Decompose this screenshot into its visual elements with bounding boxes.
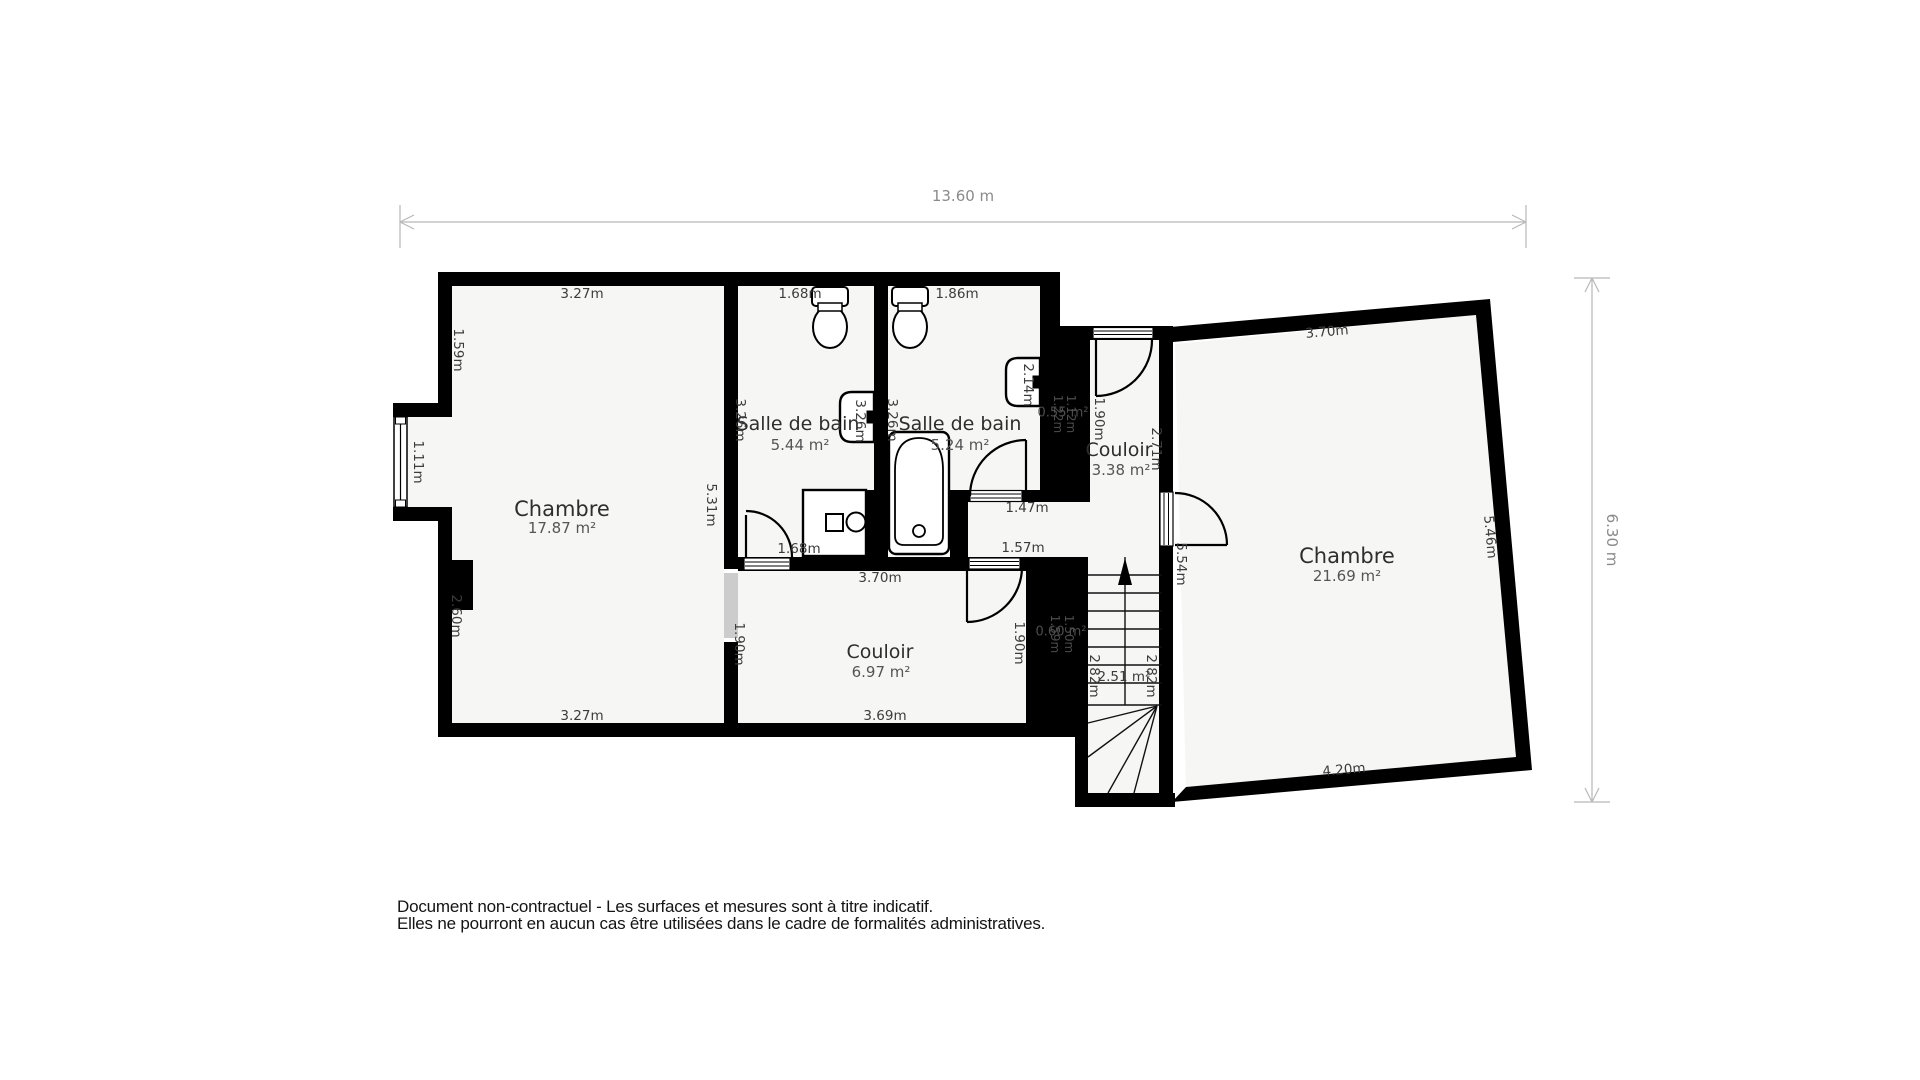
room-name-chambre-right: Chambre — [1299, 544, 1395, 568]
overall-width-dimension: 13.60 m — [932, 187, 994, 205]
dim-label: 3.26m — [884, 398, 900, 441]
window-icon — [394, 417, 407, 507]
room-name-bath1: Salle de bain — [737, 413, 860, 435]
door-opening — [969, 558, 1020, 569]
dim-label: 1.12m — [1064, 395, 1078, 433]
dim-label: 3.27m — [560, 708, 603, 724]
room-name-bath2: Salle de bain — [899, 413, 1022, 435]
dim-label: 3.27m — [560, 286, 603, 302]
room-name-chambre-left: Chambre — [514, 497, 610, 521]
dim-label: 1.11m — [410, 440, 426, 483]
dim-label: 2.60m — [448, 594, 464, 637]
room-area-chambre-left: 17.87 m² — [528, 519, 596, 537]
door-opening — [1160, 492, 1173, 546]
dim-label: 5.31m — [703, 483, 719, 526]
dim-label: 1.90m — [1091, 397, 1107, 440]
dim-label: 1.90m — [1011, 621, 1027, 664]
room-name-couloir-main: Couloir — [847, 641, 914, 663]
dim-label: 1.57m — [1001, 540, 1044, 556]
room-area-couloir-small: 3.38 m² — [1092, 461, 1151, 479]
dim-label: 1.59m — [450, 328, 466, 371]
dim-label: 1.50m — [1062, 615, 1076, 653]
dim-label: 2.71m — [1148, 427, 1164, 470]
dim-label: 3.26m — [852, 399, 868, 442]
floor-plan-page: 13.60 m 6.30 m Chambre 17.87 m² 3.27m 3.… — [0, 0, 1920, 1080]
dim-label: 3.69m — [863, 708, 906, 724]
room-area-couloir-main: 6.97 m² — [852, 663, 911, 681]
dim-label: 1.68m — [778, 286, 821, 302]
dim-label: 1.86m — [935, 286, 978, 302]
dim-label: 5.54m — [1173, 542, 1189, 585]
dim-label: 3.70m — [858, 570, 901, 586]
room-area-bath1: 5.44 m² — [771, 436, 830, 454]
window-icon — [1093, 328, 1153, 339]
room-name-couloir-small: Couloir — [1086, 439, 1153, 461]
dim-label: 2.82m — [1143, 654, 1159, 697]
dim-label: 1.47m — [1005, 500, 1048, 516]
disclaimer-line-2: Elles ne pourront en aucun cas être util… — [397, 915, 1045, 933]
toilet-icon — [892, 287, 928, 348]
room-area-bath2: 5.24 m² — [931, 436, 990, 454]
dim-label: 1.59m — [1048, 615, 1062, 653]
room-area-chambre-right: 21.69 m² — [1313, 567, 1381, 585]
dim-label: 3.26m — [732, 398, 748, 441]
dim-label: 2.14m — [1020, 363, 1036, 406]
door-opening — [744, 558, 790, 570]
dim-label: 1.22m — [1051, 395, 1065, 433]
disclaimer-line-1: Document non-contractuel - Les surfaces … — [397, 898, 933, 916]
overall-height-dimension: 6.30 m — [1603, 514, 1621, 567]
dim-label: 1.90m — [731, 622, 747, 665]
dim-label: 2.82m — [1086, 654, 1102, 697]
dim-label: 1.68m — [777, 541, 820, 557]
